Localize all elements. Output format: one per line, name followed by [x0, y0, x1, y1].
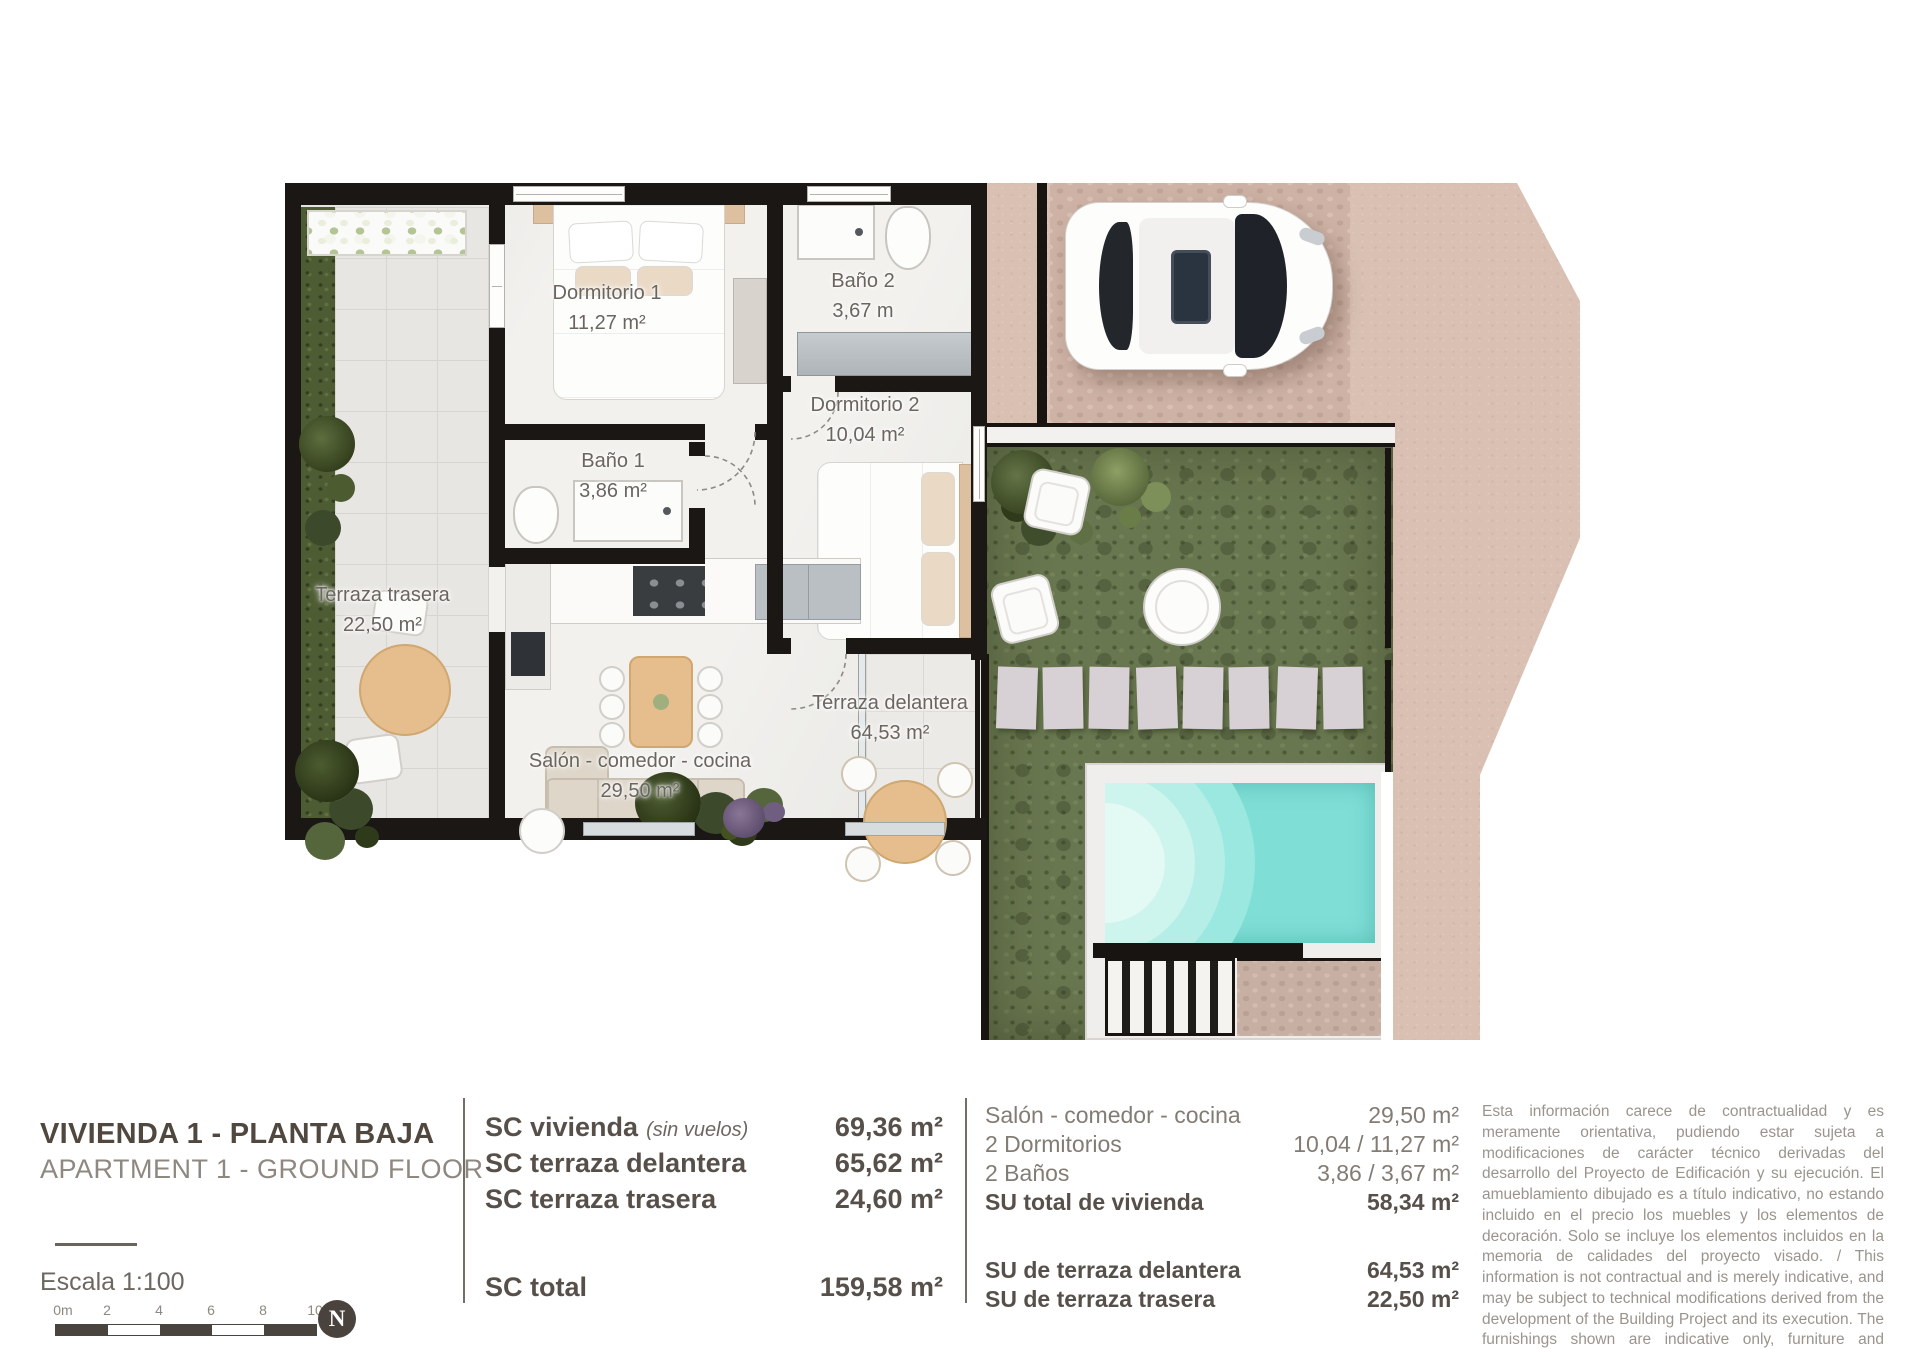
room-label-dormitorio-2: Dormitorio 2 10,04 m² — [755, 390, 975, 450]
sc-surface-table: SC vivienda(sin vuelos) 69,36 m² SC terr… — [485, 1112, 943, 1220]
scale-tick: 6 — [207, 1302, 215, 1318]
table-row: SU total de vivienda 58,34 m² — [985, 1189, 1459, 1218]
su-row-label: SU de terraza delantera — [985, 1257, 1241, 1284]
su-row-value: 22,50 m² — [1367, 1286, 1459, 1313]
room-name: Baño 2 — [763, 266, 963, 296]
sc-row-value: 24,60 m² — [835, 1184, 943, 1215]
room-area: 11,27 m² — [497, 308, 717, 338]
stepping-stone — [1182, 667, 1223, 730]
scale-bar: 0m 2 4 6 8 10 — [55, 1302, 355, 1344]
room-area: 10,04 m² — [755, 420, 975, 450]
room-name: Dormitorio 1 — [497, 278, 717, 308]
sc-row-label: SC terraza delantera — [485, 1148, 746, 1179]
room-label-bano-2: Baño 2 3,67 m — [763, 266, 963, 326]
room-area: 3,86 m² — [513, 476, 713, 506]
scale-bar-segments — [55, 1324, 317, 1336]
sc-row-label: SC terraza trasera — [485, 1184, 716, 1215]
stepping-stone — [1042, 667, 1083, 730]
room-label-salon: Salón - comedor - cocina 29,50 m² — [515, 746, 765, 806]
su-row-label: SU total de vivienda — [985, 1189, 1204, 1216]
garden-right-path — [1381, 772, 1393, 1040]
su-row-label: SU de terraza trasera — [985, 1286, 1215, 1313]
table-row: SU de terraza delantera 64,53 m² — [985, 1257, 1459, 1286]
pool-side-paving — [1237, 958, 1389, 1036]
garden-plant — [1091, 448, 1149, 506]
su-row-value: 58,34 m² — [1367, 1189, 1459, 1216]
room-name: Terraza delantera — [780, 688, 1000, 718]
swimming-pool — [1105, 783, 1375, 943]
garden-coffee-table — [1143, 568, 1221, 646]
pool-deck — [1085, 763, 1391, 1040]
car-top-view — [1065, 202, 1333, 370]
room-label-terraza-delantera: Terraza delantera 64,53 m² — [780, 688, 1000, 748]
room-label-bano-1: Baño 1 3,86 m² — [513, 446, 713, 506]
table-row: 2 Baños 3,86 / 3,67 m² — [985, 1160, 1459, 1189]
scale-tick: 0m — [53, 1302, 72, 1318]
su-row-value: 29,50 m² — [1368, 1102, 1459, 1129]
garden-right-wall — [1385, 660, 1391, 772]
scale-tick: 4 — [155, 1302, 163, 1318]
garden-right-wall — [1385, 448, 1391, 648]
room-name: Salón - comedor - cocina — [515, 746, 765, 776]
title-rule — [55, 1243, 137, 1246]
car-mirror — [1223, 364, 1247, 377]
stepping-stone — [1088, 667, 1129, 730]
north-compass-icon: N — [318, 1300, 356, 1338]
car-rear-window — [1099, 222, 1133, 350]
sc-total-value: 159,58 m² — [820, 1272, 943, 1303]
table-row: 2 Dormitorios 10,04 / 11,27 m² — [985, 1131, 1459, 1160]
sc-total-row: SC total 159,58 m² — [485, 1272, 943, 1308]
su-row-label: 2 Baños — [985, 1160, 1069, 1187]
room-name: Terraza trasera — [285, 580, 480, 610]
sc-row-label: SC vivienda — [485, 1112, 638, 1142]
plan-title-english: APARTMENT 1 - GROUND FLOOR — [40, 1154, 484, 1185]
sc-row-note: (sin vuelos) — [646, 1119, 748, 1141]
car-sunroof — [1171, 250, 1211, 324]
scale-tick: 8 — [259, 1302, 267, 1318]
floor-plan: Dormitorio 1 11,27 m² Baño 2 3,67 m Baño… — [285, 180, 1585, 1045]
floor-plan-page: Dormitorio 1 11,27 m² Baño 2 3,67 m Baño… — [0, 0, 1920, 1349]
divider — [965, 1098, 967, 1303]
su-row-label: Salón - comedor - cocina — [985, 1102, 1241, 1129]
table-row: SC vivienda(sin vuelos) 69,36 m² — [485, 1112, 943, 1148]
pool-side-wall — [1093, 943, 1303, 958]
spacer — [985, 1218, 1459, 1257]
stepping-stone — [1322, 667, 1363, 730]
su-row-value: 3,86 / 3,67 m² — [1317, 1160, 1459, 1187]
stepping-stone — [1276, 666, 1318, 729]
su-surface-table: Salón - comedor - cocina 29,50 m² 2 Dorm… — [985, 1102, 1459, 1315]
room-label-terraza-trasera: Terraza trasera 22,50 m² — [285, 580, 480, 640]
stepping-stone — [1228, 667, 1269, 730]
su-row-label: 2 Dormitorios — [985, 1131, 1122, 1158]
room-area: 64,53 m² — [780, 718, 1000, 748]
car-mirror — [1223, 195, 1247, 208]
legal-disclaimer: Esta información carece de contractualid… — [1482, 1102, 1884, 1349]
table-row: SC terraza trasera 24,60 m² — [485, 1184, 943, 1220]
room-area: 3,67 m — [763, 296, 963, 326]
table-row: SU de terraza trasera 22,50 m² — [985, 1286, 1459, 1315]
scale-label: Escala 1:100 — [40, 1268, 185, 1297]
divider — [463, 1098, 465, 1303]
plan-title-spanish: VIVIENDA 1 - PLANTA BAJA — [40, 1118, 434, 1151]
scale-tick: 2 — [103, 1302, 111, 1318]
table-row: Salón - comedor - cocina 29,50 m² — [985, 1102, 1459, 1131]
su-row-value: 10,04 / 11,27 m² — [1293, 1131, 1459, 1158]
sc-row-value: 65,62 m² — [835, 1148, 943, 1179]
room-label-dormitorio-1: Dormitorio 1 11,27 m² — [497, 278, 717, 338]
sc-row-value: 69,36 m² — [835, 1112, 943, 1143]
table-row: SC terraza delantera 65,62 m² — [485, 1148, 943, 1184]
room-area: 29,50 m² — [515, 776, 765, 806]
stepping-stone — [1136, 666, 1178, 729]
sc-total-label: SC total — [485, 1272, 587, 1303]
room-area: 22,50 m² — [285, 610, 480, 640]
room-name: Dormitorio 2 — [755, 390, 975, 420]
su-row-value: 64,53 m² — [1367, 1257, 1459, 1284]
info-footer: VIVIENDA 1 - PLANTA BAJA APARTMENT 1 - G… — [0, 1090, 1920, 1349]
outdoor-stairs — [1105, 958, 1235, 1036]
room-name: Baño 1 — [513, 446, 713, 476]
